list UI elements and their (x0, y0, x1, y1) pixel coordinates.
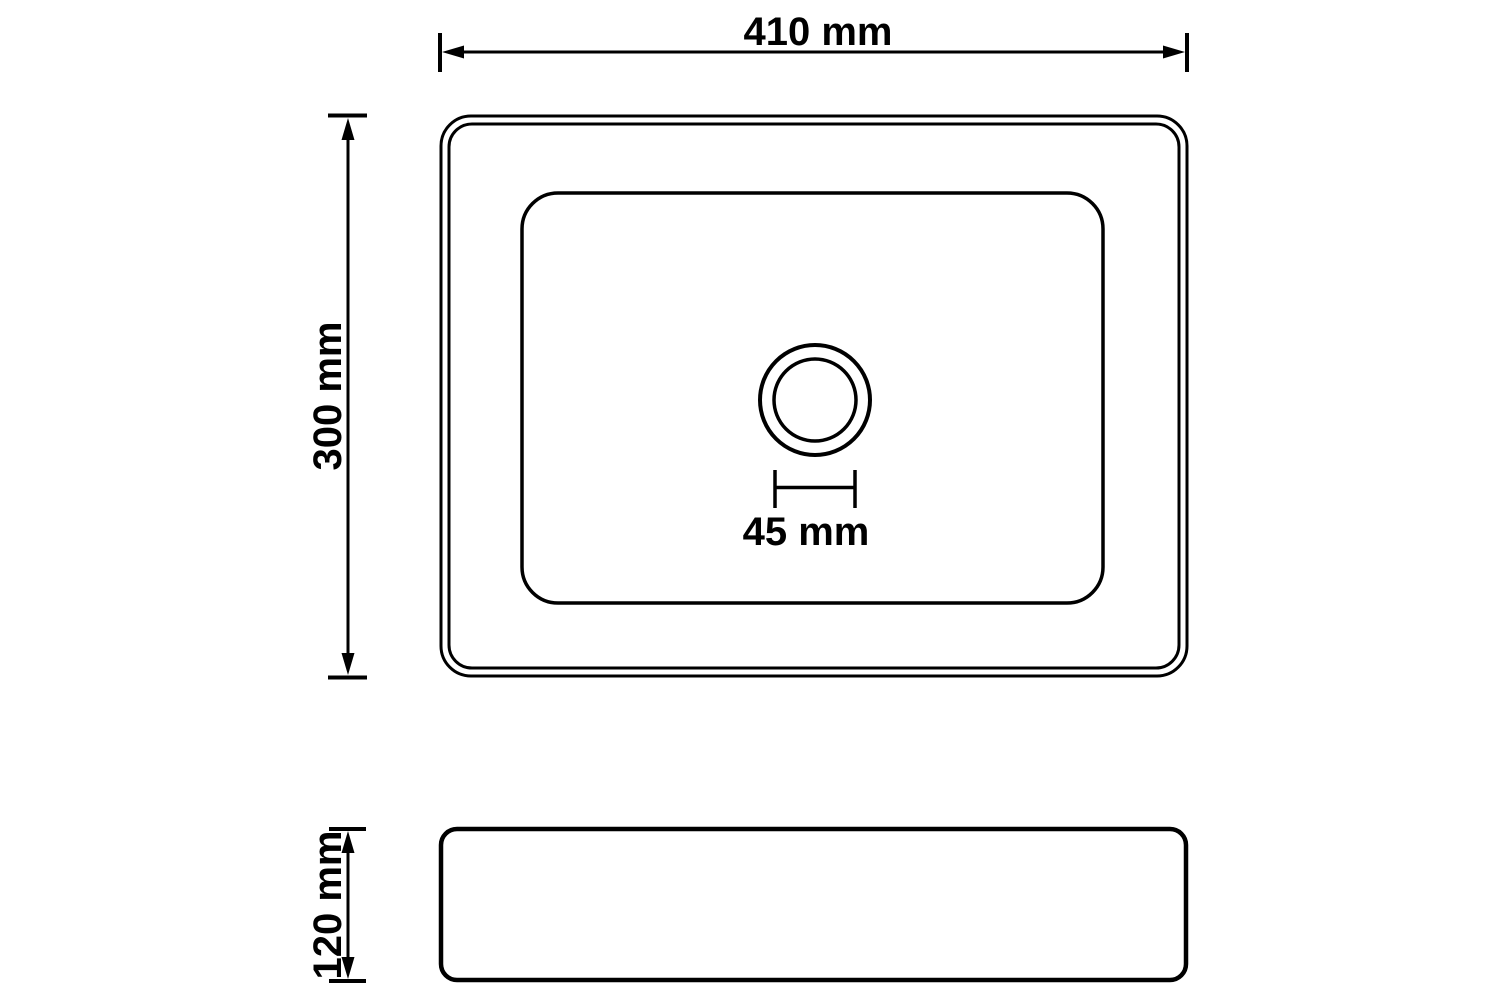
arrowhead-up (342, 118, 355, 140)
drawing-canvas: 410 mm 300 mm (0, 0, 1500, 1000)
basin-outer-rim (441, 116, 1187, 676)
dimension-drain: 45 mm (743, 470, 870, 554)
washbasin-technical-drawing: 410 mm 300 mm (0, 0, 1500, 1000)
basin-outer-rim-inner-line (449, 124, 1179, 668)
arrowhead-down (342, 653, 355, 675)
dimension-top-width: 410 mm (440, 10, 1187, 72)
arrowhead-left (442, 46, 464, 59)
dimension-top-depth: 300 mm (306, 116, 367, 678)
depth-dimension-label: 300 mm (306, 322, 350, 471)
arrowhead-right (1163, 46, 1185, 59)
side-view (441, 829, 1186, 980)
drain-inner-circle (774, 359, 856, 441)
top-view (441, 116, 1187, 676)
dimension-side-height: 120 mm (306, 829, 366, 981)
top-width-dimension-label: 410 mm (744, 10, 893, 54)
basin-side-profile (441, 829, 1186, 980)
drain-outer-circle (760, 345, 870, 455)
drain-dimension-label: 45 mm (743, 510, 870, 554)
